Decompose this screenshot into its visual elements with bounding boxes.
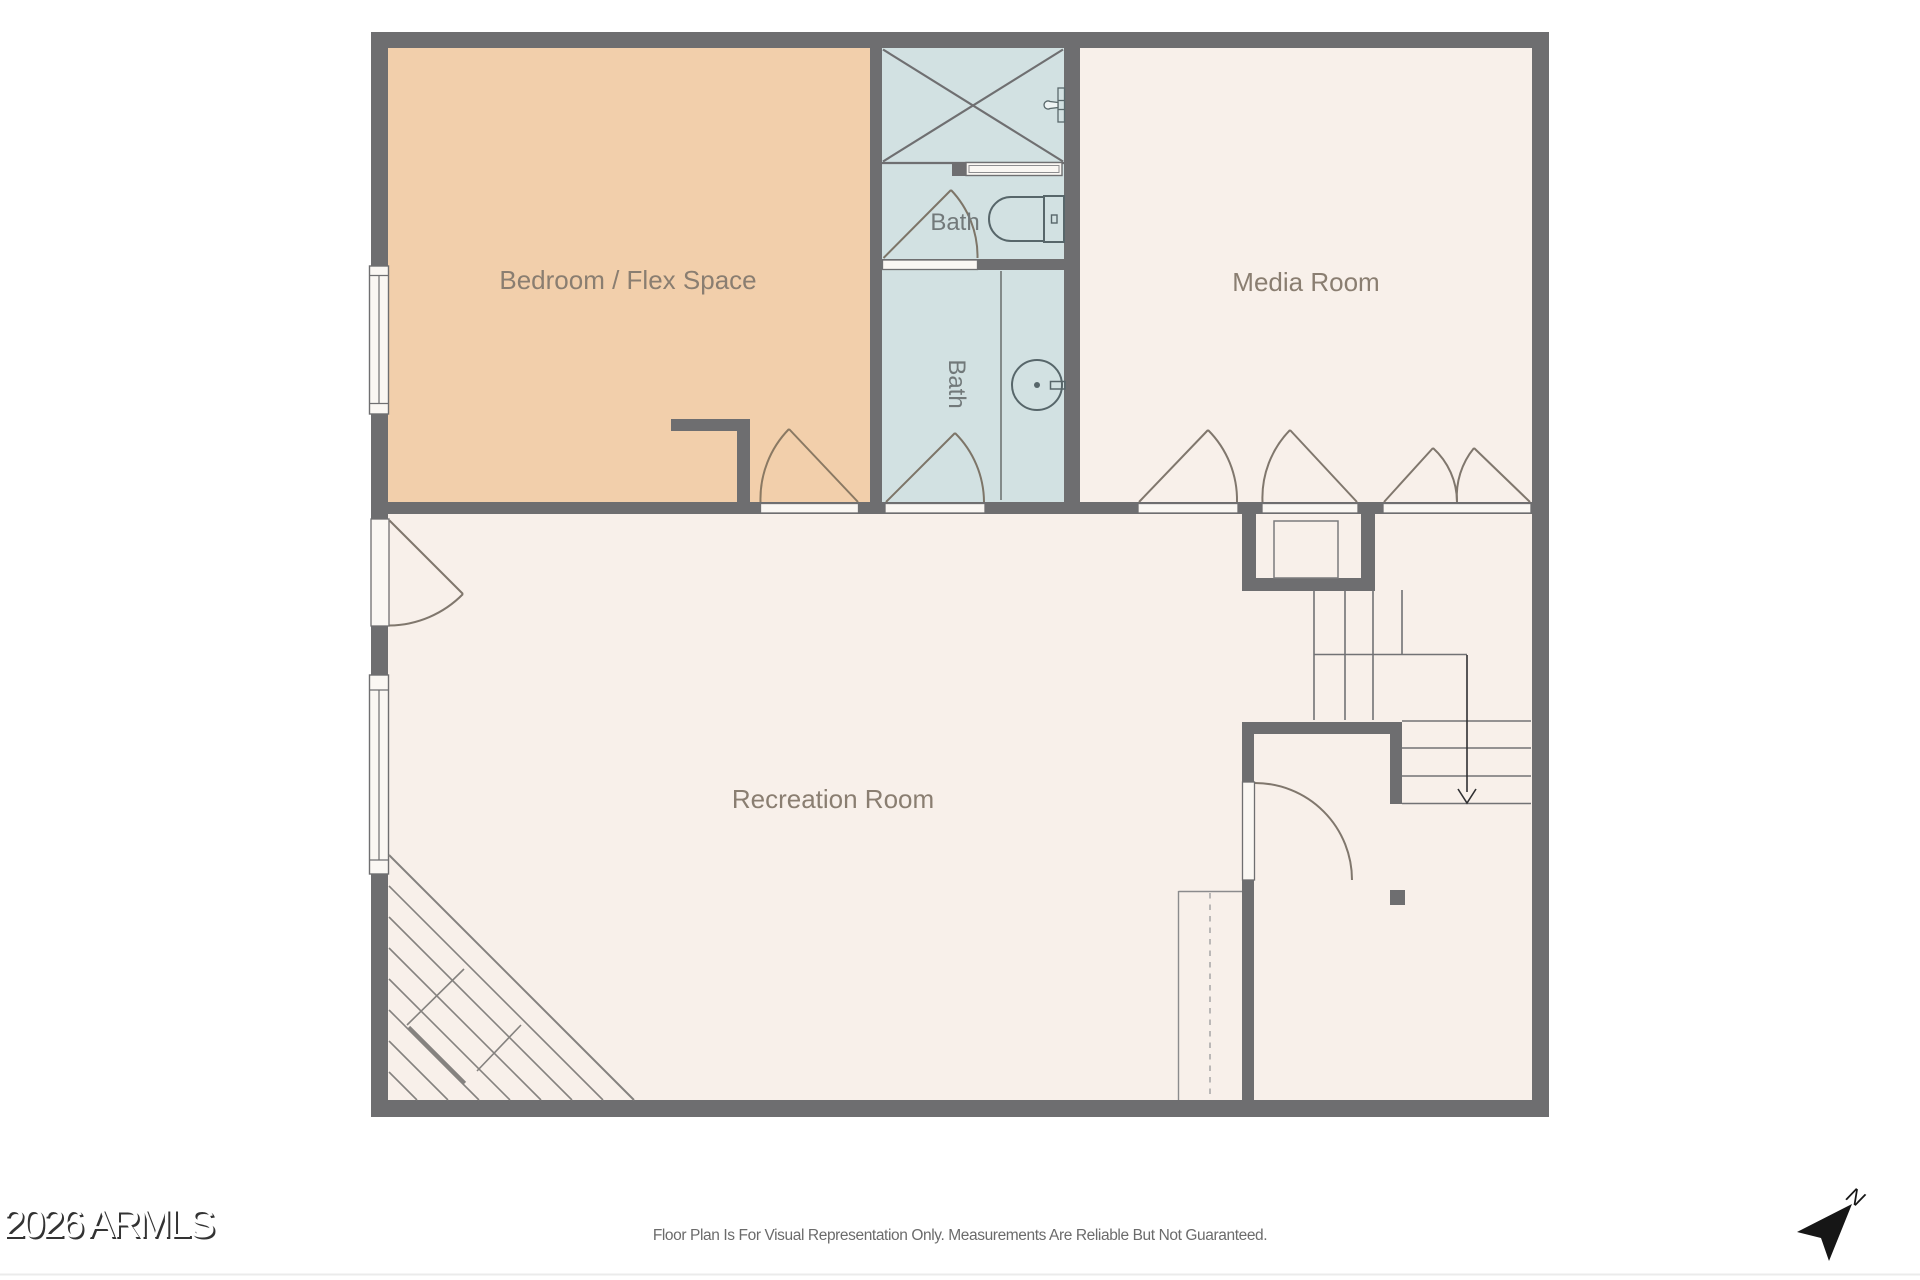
svg-text:Recreation Room: Recreation Room bbox=[732, 784, 934, 814]
svg-text:Bath: Bath bbox=[943, 359, 970, 408]
svg-text:Bedroom / Flex Space: Bedroom / Flex Space bbox=[499, 265, 756, 295]
svg-text:Bath: Bath bbox=[930, 209, 979, 236]
svg-text:Media Room: Media Room bbox=[1232, 267, 1379, 297]
svg-text:2026 ARMLS: 2026 ARMLS bbox=[3, 1202, 214, 1246]
svg-text:Floor Plan Is For Visual Repre: Floor Plan Is For Visual Representation … bbox=[653, 1227, 1267, 1244]
